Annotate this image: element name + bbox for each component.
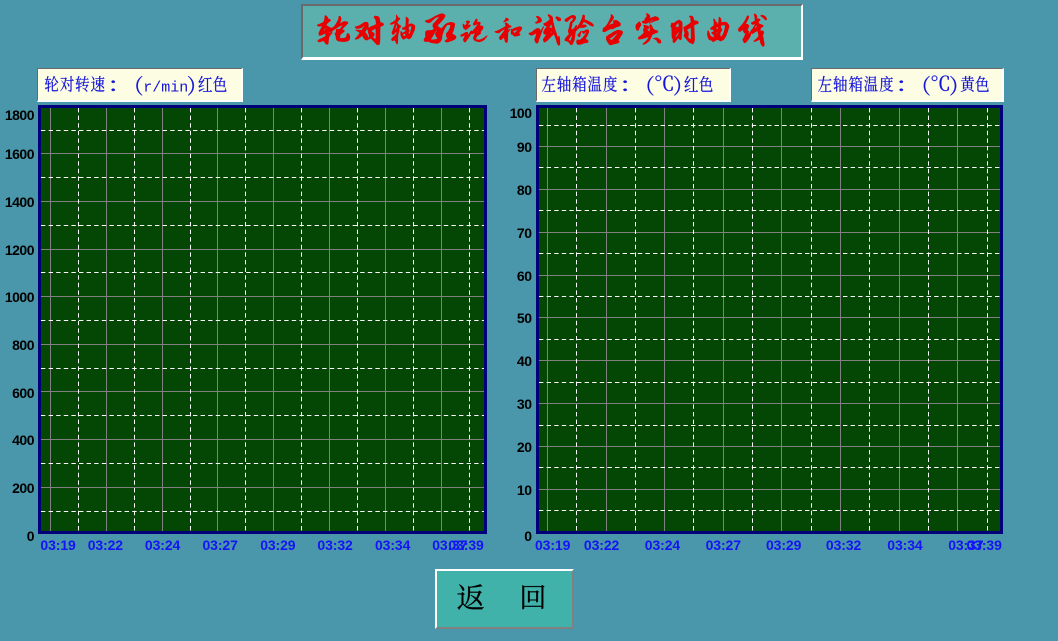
svg-text:r/min: r/min [143, 80, 188, 97]
